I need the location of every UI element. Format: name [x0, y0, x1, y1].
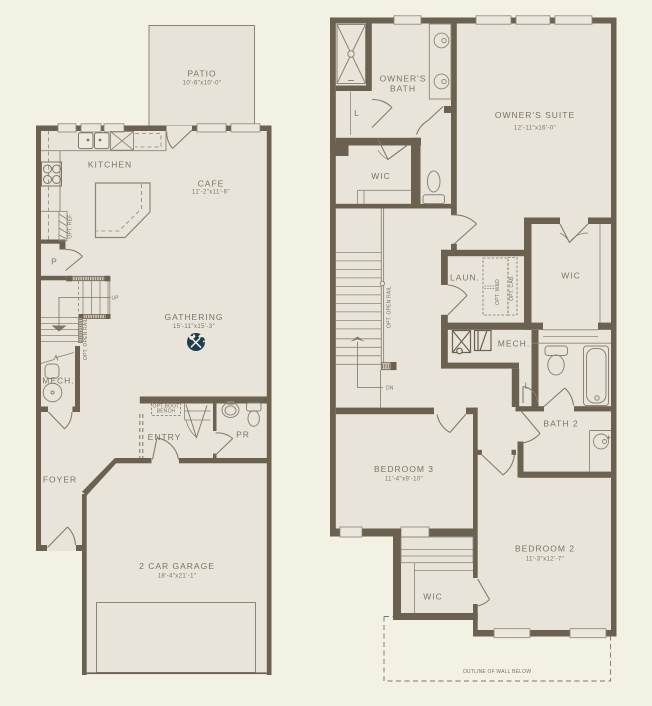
svg-text:WIC: WIC: [371, 171, 391, 181]
svg-text:15'-11"x15'-3": 15'-11"x15'-3": [173, 324, 215, 330]
svg-text:OPT. W&D: OPT. W&D: [495, 279, 501, 305]
svg-text:OPT. OPEN RAIL: OPT. OPEN RAIL: [387, 286, 393, 328]
svg-text:11'-2"x11'-6": 11'-2"x11'-6": [192, 190, 230, 196]
svg-text:CAFE: CAFE: [198, 179, 225, 189]
svg-text:OPT. OPEN RAIL: OPT. OPEN RAIL: [83, 318, 89, 360]
svg-text:UP: UP: [112, 296, 120, 302]
svg-text:BATH 2: BATH 2: [543, 419, 578, 429]
svg-text:BENCH: BENCH: [157, 409, 176, 415]
svg-text:10'-6"x10'-0": 10'-6"x10'-0": [183, 81, 222, 87]
svg-text:P: P: [51, 257, 58, 267]
svg-text:PATIO: PATIO: [187, 69, 216, 79]
svg-text:2 CAR GARAGE: 2 CAR GARAGE: [139, 561, 215, 571]
svg-text:OPT. CAB.: OPT. CAB.: [509, 275, 515, 301]
svg-text:KITCHEN: KITCHEN: [88, 160, 132, 170]
svg-text:11'-3"x12'-7": 11'-3"x12'-7": [526, 557, 564, 563]
svg-text:OPT. REF.: OPT. REF.: [68, 213, 74, 238]
svg-text:18'-4"x21'-1": 18'-4"x21'-1": [158, 574, 197, 580]
svg-text:11'-4"x9'-10": 11'-4"x9'-10": [385, 477, 423, 483]
svg-text:GATHERING: GATHERING: [165, 312, 224, 322]
svg-text:MECH.: MECH.: [498, 339, 530, 349]
svg-text:WIC: WIC: [561, 271, 581, 281]
svg-text:BATH: BATH: [390, 84, 416, 94]
svg-text:OUTLINE OF WALL BELOW: OUTLINE OF WALL BELOW: [463, 669, 531, 675]
svg-text:MECH.: MECH.: [42, 376, 74, 386]
svg-text:PR: PR: [236, 430, 250, 440]
svg-text:BEDROOM 3: BEDROOM 3: [374, 464, 434, 474]
svg-text:L: L: [354, 108, 360, 118]
svg-text:12'-11"x16'-0": 12'-11"x16'-0": [514, 126, 556, 132]
svg-text:OWNER'S: OWNER'S: [380, 74, 427, 84]
svg-text:LAUN.: LAUN.: [450, 273, 480, 283]
svg-text:WIC: WIC: [423, 592, 443, 602]
svg-text:L: L: [525, 381, 531, 391]
svg-text:BEDROOM 2: BEDROOM 2: [515, 544, 575, 554]
svg-text:FOYER: FOYER: [43, 475, 77, 485]
svg-text:DN: DN: [386, 386, 394, 392]
svg-text:OWNER'S SUITE: OWNER'S SUITE: [495, 110, 575, 120]
svg-text:ENTRY: ENTRY: [148, 432, 182, 442]
